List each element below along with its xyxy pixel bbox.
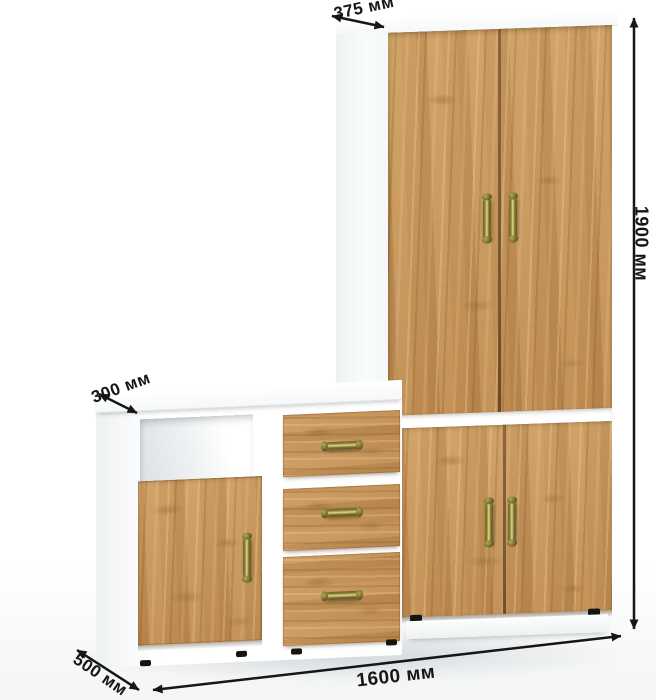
dimension-arrows	[0, 0, 656, 700]
furniture-dimension-diagram: 375 мм 1900 мм 300 мм 500 мм 1600 мм	[0, 0, 656, 700]
height-label: 1900 мм	[631, 199, 652, 289]
